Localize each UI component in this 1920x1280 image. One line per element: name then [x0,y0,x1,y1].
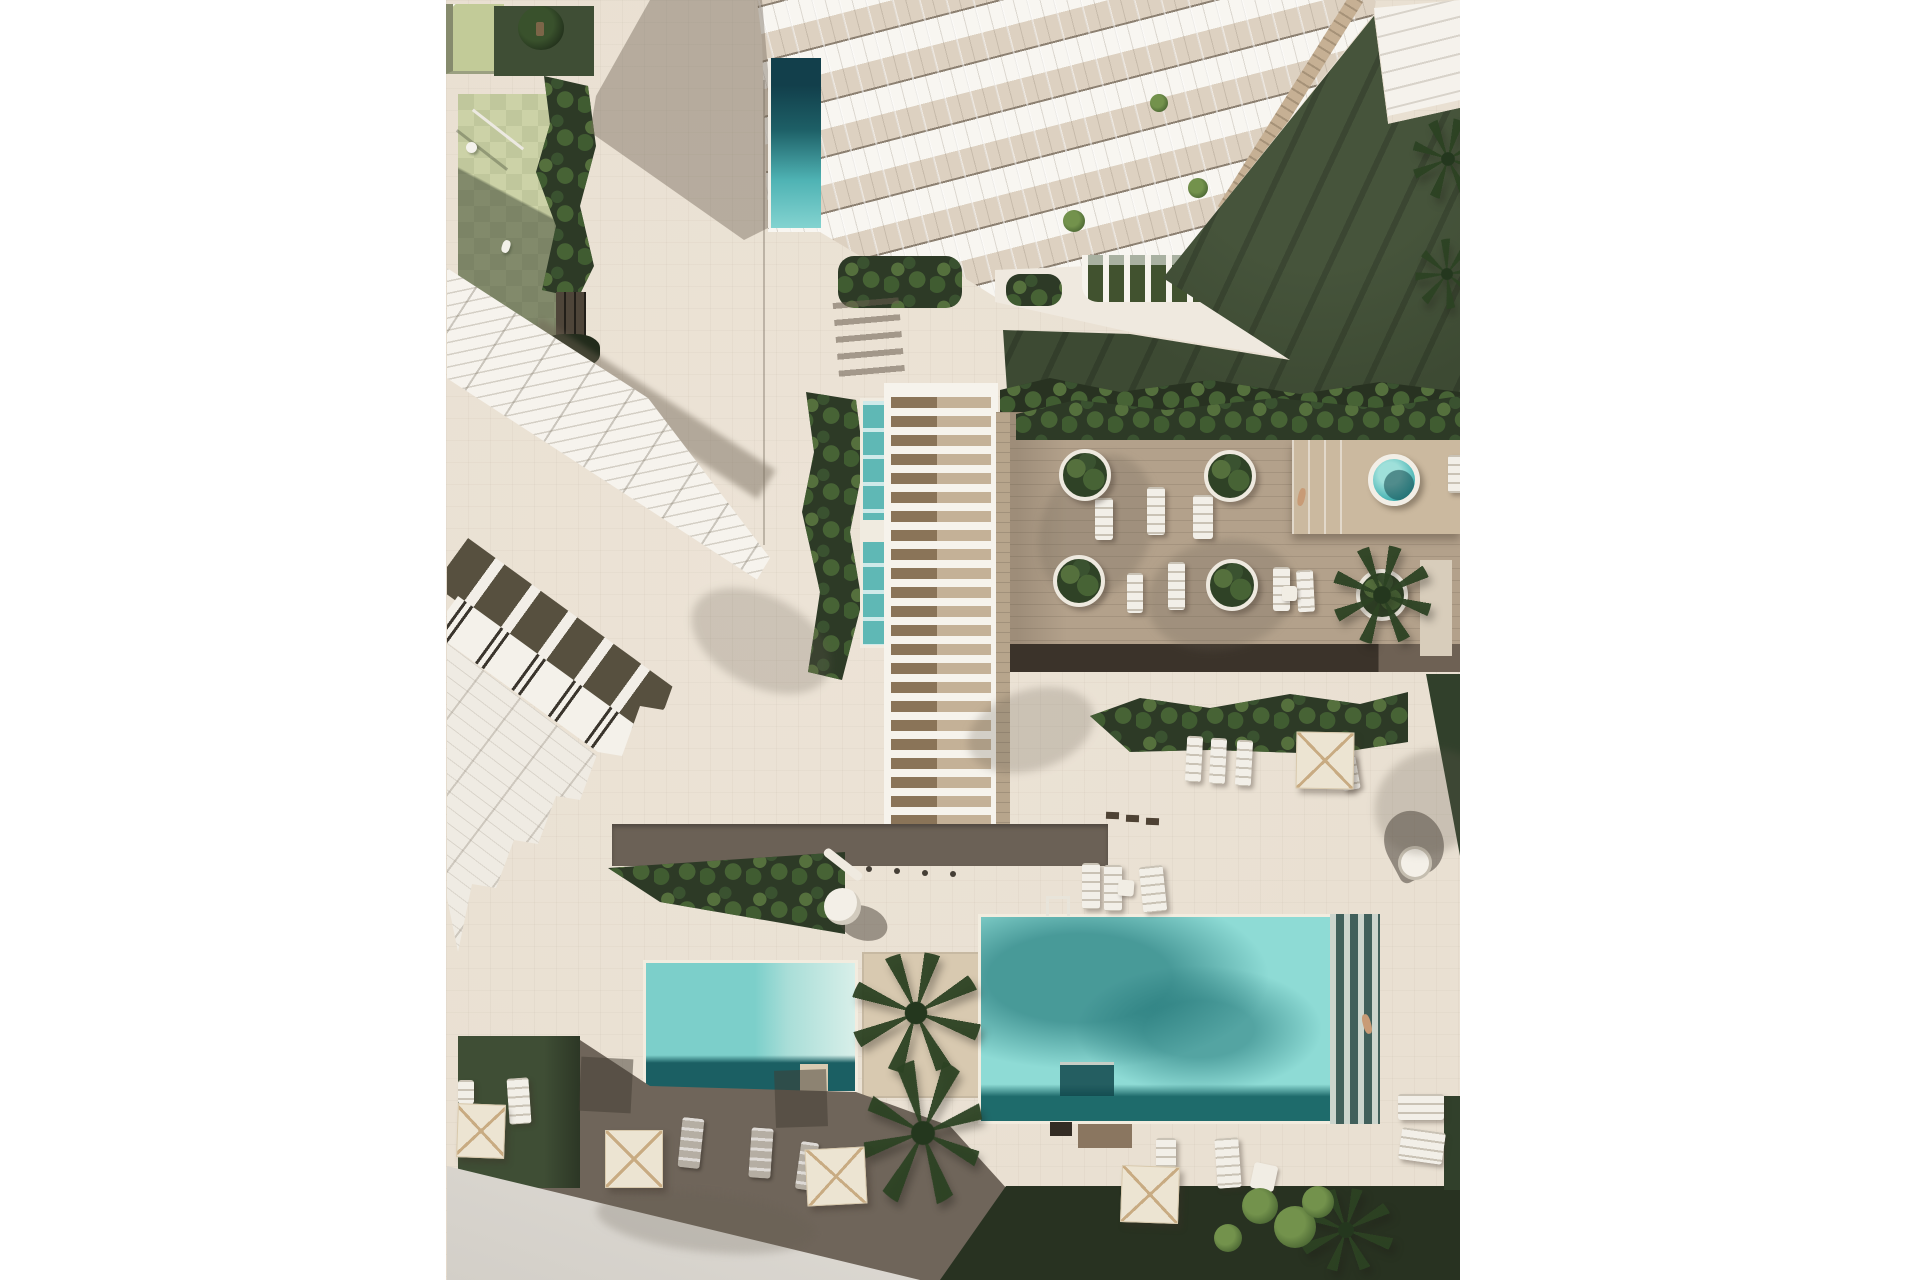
sun-lounger [1214,1137,1241,1189]
palm-tree [1332,545,1432,645]
round-planter [1204,450,1256,502]
ground-shadow [674,566,849,716]
leaf-cluster [1302,1186,1334,1218]
sun-lounger [677,1117,704,1169]
parasol [456,1103,506,1159]
parasol-ribs [806,1148,867,1206]
sun-lounger [1156,1138,1176,1168]
pool-marker [1106,812,1119,819]
leaf-cluster [1214,1224,1242,1252]
sun-lounger [748,1127,773,1178]
person [1361,1013,1374,1034]
deck-lamp [894,868,900,874]
parasol [805,1146,868,1206]
deck-lamp [866,866,872,872]
leaf-cluster [1242,1188,1278,1224]
parasol [1296,731,1355,789]
sun-lounger [1193,495,1213,539]
sun-lounger [1147,487,1165,535]
pool-marker [1126,815,1139,822]
sun-lounger [1448,455,1460,493]
round-planter [1059,449,1111,501]
sun-lounger [1235,740,1253,787]
palm-tree [850,952,982,1074]
palm-tree [1412,118,1460,200]
sun-lounger [1168,562,1185,610]
sun-lounger [1095,498,1113,540]
aerial-render [446,0,1460,1280]
deck-lamp [922,870,928,876]
round-planter [1206,559,1258,611]
sun-lounger [1185,736,1203,783]
leaf-cluster [1150,94,1168,112]
parasol [605,1130,663,1188]
parasol-ribs [1297,733,1354,789]
side-table [1282,586,1297,601]
parasol [1120,1165,1180,1224]
parasol-ribs [1121,1166,1179,1223]
palm-tree [1406,230,1460,319]
parasol-shadow [579,1057,634,1114]
sun-lounger [1139,865,1168,913]
parasol-ribs [606,1131,662,1187]
ground-shadow [593,1181,818,1264]
parasol-ribs [457,1104,505,1158]
ground-shadow [1354,728,1460,876]
side-table [1117,879,1134,896]
sun-lounger [1296,570,1315,613]
sun-lounger [1082,863,1100,909]
round-planter [1053,555,1105,607]
sun-lounger [1127,573,1143,613]
pool-marker [1146,818,1159,825]
ground-shadow [957,672,1105,788]
person [1296,487,1307,506]
deck-lamp [950,871,956,877]
sun-lounger [1398,1094,1444,1120]
object-layer [446,0,1460,1280]
palm-tree [854,1051,992,1216]
sun-lounger [1398,1127,1446,1165]
sun-lounger [1209,738,1227,785]
sun-lounger [458,1080,474,1104]
leaf-cluster [1063,210,1085,232]
page [0,0,1920,1280]
sun-lounger [506,1077,531,1124]
leaf-cluster [1188,178,1208,198]
parasol-shadow [774,1069,828,1128]
